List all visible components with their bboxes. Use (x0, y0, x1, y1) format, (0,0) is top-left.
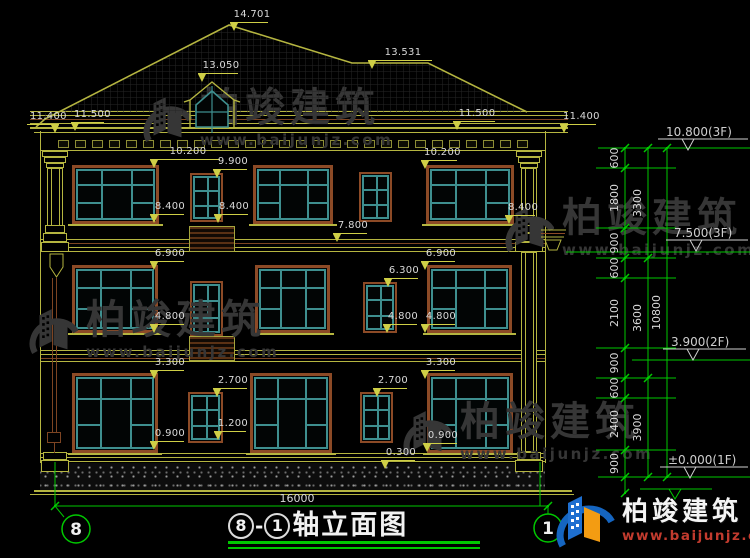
elevation-callout-arrow (230, 23, 238, 31)
level-marker-text: 3.900(2F) (671, 335, 729, 349)
elevation-callout-text: 13.531 (371, 48, 435, 58)
level-marker-text: ±0.000(1F) (668, 453, 736, 467)
window-glass (254, 377, 328, 449)
window-mullion (131, 171, 133, 218)
window (427, 265, 512, 333)
elevation-callout-arrow (213, 170, 221, 178)
window-mullion (432, 202, 455, 204)
chain-dim-text: 3600 (631, 304, 644, 332)
elevation-callout-arrow (150, 442, 158, 450)
watermark-url: www.baijunjz.com (460, 445, 653, 463)
pilaster-left-plinth-block (43, 452, 67, 460)
floor-band-line (40, 247, 545, 248)
window (363, 282, 397, 333)
dim-tick (663, 473, 671, 481)
elevation-callout-text: 1.200 (217, 419, 249, 429)
window-sill (68, 224, 163, 226)
drawing-title: 8 - 1 轴立面图 (228, 512, 408, 539)
elevation-callout-text: 10.200 (424, 148, 460, 158)
window-mullion (305, 379, 307, 447)
chain-dim-text: 900 (608, 353, 621, 374)
elevation-callout-arrow (198, 74, 206, 82)
window-mullion (130, 424, 152, 426)
window-glass (193, 176, 220, 219)
elevation-callout-text: 11.500 (456, 109, 498, 119)
watermark-url: www.baijunjz.com (562, 241, 750, 259)
dim-tick (644, 473, 652, 481)
dim-tick (621, 274, 629, 282)
window-mullion (307, 171, 309, 218)
elevation-callout-text: 3.300 (424, 358, 458, 368)
elevation-callout-arrow (213, 389, 221, 397)
elevation-callout-arrow (150, 371, 158, 379)
elevation-callout-text: 10.200 (153, 147, 223, 157)
ground-line (30, 494, 574, 495)
dentil (92, 140, 103, 148)
elevation-callout-arrow (383, 325, 391, 333)
elevation-callout-line (368, 60, 432, 61)
title-axis-end: 1 (264, 513, 290, 539)
elevation-callout-arrow (368, 61, 376, 69)
window-mullion (256, 424, 277, 426)
dim-tick (644, 374, 652, 382)
elevation-callout-text: 11.500 (74, 110, 107, 120)
watermark-logo-icon (22, 301, 78, 361)
chain-dim-text: 600 (608, 258, 621, 279)
window (253, 165, 333, 224)
plinth (40, 463, 545, 490)
window-mullion (365, 425, 388, 427)
elevation-callout-text: 0.300 (384, 448, 418, 458)
window-mullion (376, 177, 378, 217)
window-glass (76, 169, 155, 220)
elevation-callout-text: 4.800 (424, 312, 458, 322)
elevation-callout-text: 3.300 (153, 358, 187, 368)
dentil (517, 140, 528, 148)
pilaster-left-base (45, 225, 65, 233)
wall-edge-left (40, 131, 41, 463)
window-mullion (433, 287, 506, 289)
chain-dim-text: 600 (608, 378, 621, 399)
level-marker-triangle (682, 139, 694, 150)
level-marker-text: 10.800(3F) (666, 125, 732, 139)
window (359, 172, 392, 222)
watermark: 柏竣建筑 www.baijunjz.com (136, 88, 393, 149)
cornice-line (40, 150, 545, 151)
elevation-callout-arrow (214, 432, 222, 440)
window (72, 373, 158, 453)
window-mullion (78, 287, 152, 289)
axis-bubble-left (62, 515, 90, 543)
window-mullion (78, 398, 152, 400)
watermark-url: www.baijunjz.com (200, 131, 393, 149)
elevation-callout-text: 2.700 (216, 376, 250, 386)
elevation-callout-arrow (453, 122, 461, 130)
elevation-callout-text: 8.400 (508, 203, 538, 213)
window-mullion (305, 271, 307, 327)
window-mullion (365, 409, 388, 411)
dim-tick (663, 144, 671, 152)
elevation-callout-arrow (150, 262, 158, 270)
pilaster-left-plinth-block (41, 460, 69, 472)
window-sill (249, 224, 337, 226)
floor-band-line (40, 251, 545, 252)
title-underline-1 (228, 541, 480, 544)
window-mullion (261, 287, 324, 289)
elevation-callout-text: 11.400 (30, 112, 62, 122)
dim-tick (621, 473, 629, 481)
window-mullion (101, 171, 103, 218)
elevation-callout-text: 9.900 (216, 157, 250, 167)
watermark-logo-icon (136, 89, 192, 149)
vendor-logo-url: www.baijunjz.com (622, 528, 750, 544)
window-mullion (259, 202, 279, 204)
window-mullion (259, 184, 327, 186)
elevation-callout-text: 6.300 (387, 266, 421, 276)
window-mullion (256, 398, 326, 400)
elevation-callout-arrow (421, 161, 429, 169)
elevation-callout-text: 8.400 (217, 202, 251, 212)
chain-dim-text: 2100 (608, 299, 621, 327)
elevation-callout-arrow (150, 215, 158, 223)
elevation-callout-arrow (384, 279, 392, 287)
dim-tick (644, 144, 652, 152)
dentil (109, 140, 120, 148)
dim-line (55, 506, 64, 517)
title-axis-start: 8 (228, 513, 254, 539)
window-mullion (78, 424, 100, 426)
window-mullion (280, 271, 282, 327)
window-mullion (364, 189, 387, 191)
elevation-callout-text: 0.900 (426, 431, 460, 441)
dentil (466, 140, 477, 148)
watermark-brand: 柏竣建筑 (562, 198, 750, 238)
window-mullion (78, 184, 153, 186)
pilaster-left-shaft-line (51, 168, 52, 226)
window-mullion (130, 379, 132, 447)
elevation-callout-arrow (421, 371, 429, 379)
elevation-callout-text: 14.701 (233, 10, 271, 20)
floor-band-line (40, 243, 545, 244)
downspout (54, 443, 55, 453)
elevation-callout-arrow (333, 234, 341, 242)
downspout-bracket (47, 432, 61, 443)
cad-elevation-drawing: 6001800900600210090060024009003300360039… (0, 0, 750, 558)
window-mullion (432, 184, 508, 186)
window-glass (362, 175, 389, 219)
elevation-callout-arrow (421, 325, 429, 333)
elevation-callout-arrow (505, 216, 513, 224)
window-mullion (193, 409, 218, 411)
dentil (58, 140, 69, 148)
vendor-logo-icon (546, 487, 616, 555)
pilaster-left-shaft (47, 168, 63, 226)
elevation-callout-text: 2.700 (376, 376, 410, 386)
dim-tick (51, 502, 59, 510)
window-mullion (78, 202, 101, 204)
pilaster-ornament (50, 254, 63, 277)
floor-band-line (40, 361, 545, 362)
window-glass (363, 395, 390, 440)
vendor-logo-brand: 柏竣建筑 (622, 499, 750, 525)
elevation-callout-arrow (150, 325, 158, 333)
window (250, 373, 332, 453)
window-mullion (484, 271, 486, 327)
window-mullion (195, 190, 218, 192)
title-text: 轴立面图 (292, 512, 408, 539)
window-mullion (377, 397, 379, 438)
window-sill (246, 453, 336, 455)
spandrel-panel (189, 226, 235, 252)
window-sill (68, 453, 162, 455)
dim-tick (621, 164, 629, 172)
ground-line (34, 490, 572, 492)
elevation-callout-arrow (51, 125, 59, 133)
window-glass (76, 377, 154, 449)
window-mullion (307, 202, 327, 204)
window-mullion (364, 204, 387, 206)
elevation-callout-arrow (423, 444, 431, 452)
window-sill (423, 333, 516, 335)
window-mullion (484, 308, 506, 310)
elevation-callout-text: 11.400 (563, 112, 599, 122)
pilaster-left-base (43, 233, 67, 242)
pilaster-left-base (41, 242, 69, 252)
window-mullion (279, 171, 281, 218)
dim-tick (621, 344, 629, 352)
dentil (483, 140, 494, 148)
elevation-callout-arrow (381, 461, 389, 469)
level-marker-triangle (684, 467, 696, 478)
elevation-callout-text: 0.900 (153, 429, 187, 439)
elevation-callout-text: 8.400 (153, 202, 187, 212)
window-mullion (380, 287, 382, 328)
window-mullion (277, 379, 279, 447)
floor-band-line (40, 239, 545, 240)
window-mullion (305, 424, 326, 426)
title-underline-2 (228, 547, 480, 549)
window-mullion (193, 425, 218, 427)
elevation-callout-text: 4.800 (386, 312, 420, 322)
window-mullion (433, 308, 455, 310)
window-mullion (485, 171, 487, 218)
watermark-brand: 柏竣建筑 (200, 88, 393, 128)
elevation-callout-text: 6.900 (424, 249, 458, 259)
axis-bubble-left-text: 8 (70, 520, 82, 540)
elevation-callout-arrow (71, 123, 79, 131)
elevation-callout-arrow (560, 125, 568, 133)
window (72, 165, 159, 224)
dim-tick (621, 374, 629, 382)
vendor-logo: 柏竣建筑 www.baijunjz.com (546, 487, 750, 555)
level-marker-triangle (687, 349, 699, 360)
elevation-callout-arrow (150, 160, 158, 168)
window-mullion (455, 171, 457, 218)
dim-tick (621, 144, 629, 152)
window-mullion (131, 202, 154, 204)
window (360, 392, 393, 443)
window-mullion (207, 178, 209, 217)
elevation-callout-arrow (214, 215, 222, 223)
window-mullion (305, 308, 324, 310)
window-glass (257, 169, 329, 220)
elevation-callout-arrow (421, 262, 429, 270)
chain-dim-text: 600 (608, 148, 621, 169)
dentil (500, 140, 511, 148)
watermark-brand: 柏竣建筑 (460, 402, 653, 442)
elevation-callout-text: 6.900 (153, 249, 187, 259)
elevation-callout-line (150, 159, 220, 160)
window-mullion (206, 397, 208, 438)
elevation-callout-text: 13.050 (201, 61, 241, 71)
title-separator: - (255, 513, 263, 539)
window-mullion (368, 299, 392, 301)
dentil (75, 140, 86, 148)
dentil (398, 140, 409, 148)
window-mullion (195, 205, 218, 207)
elevation-callout-text: 4.800 (153, 312, 187, 322)
chain-dim-text: 10800 (650, 295, 663, 330)
window-mullion (100, 379, 102, 447)
pilaster-left-shaft-line (59, 168, 60, 226)
elevation-callout-arrow (373, 389, 381, 397)
elevation-callout-text: 7.800 (336, 221, 370, 231)
